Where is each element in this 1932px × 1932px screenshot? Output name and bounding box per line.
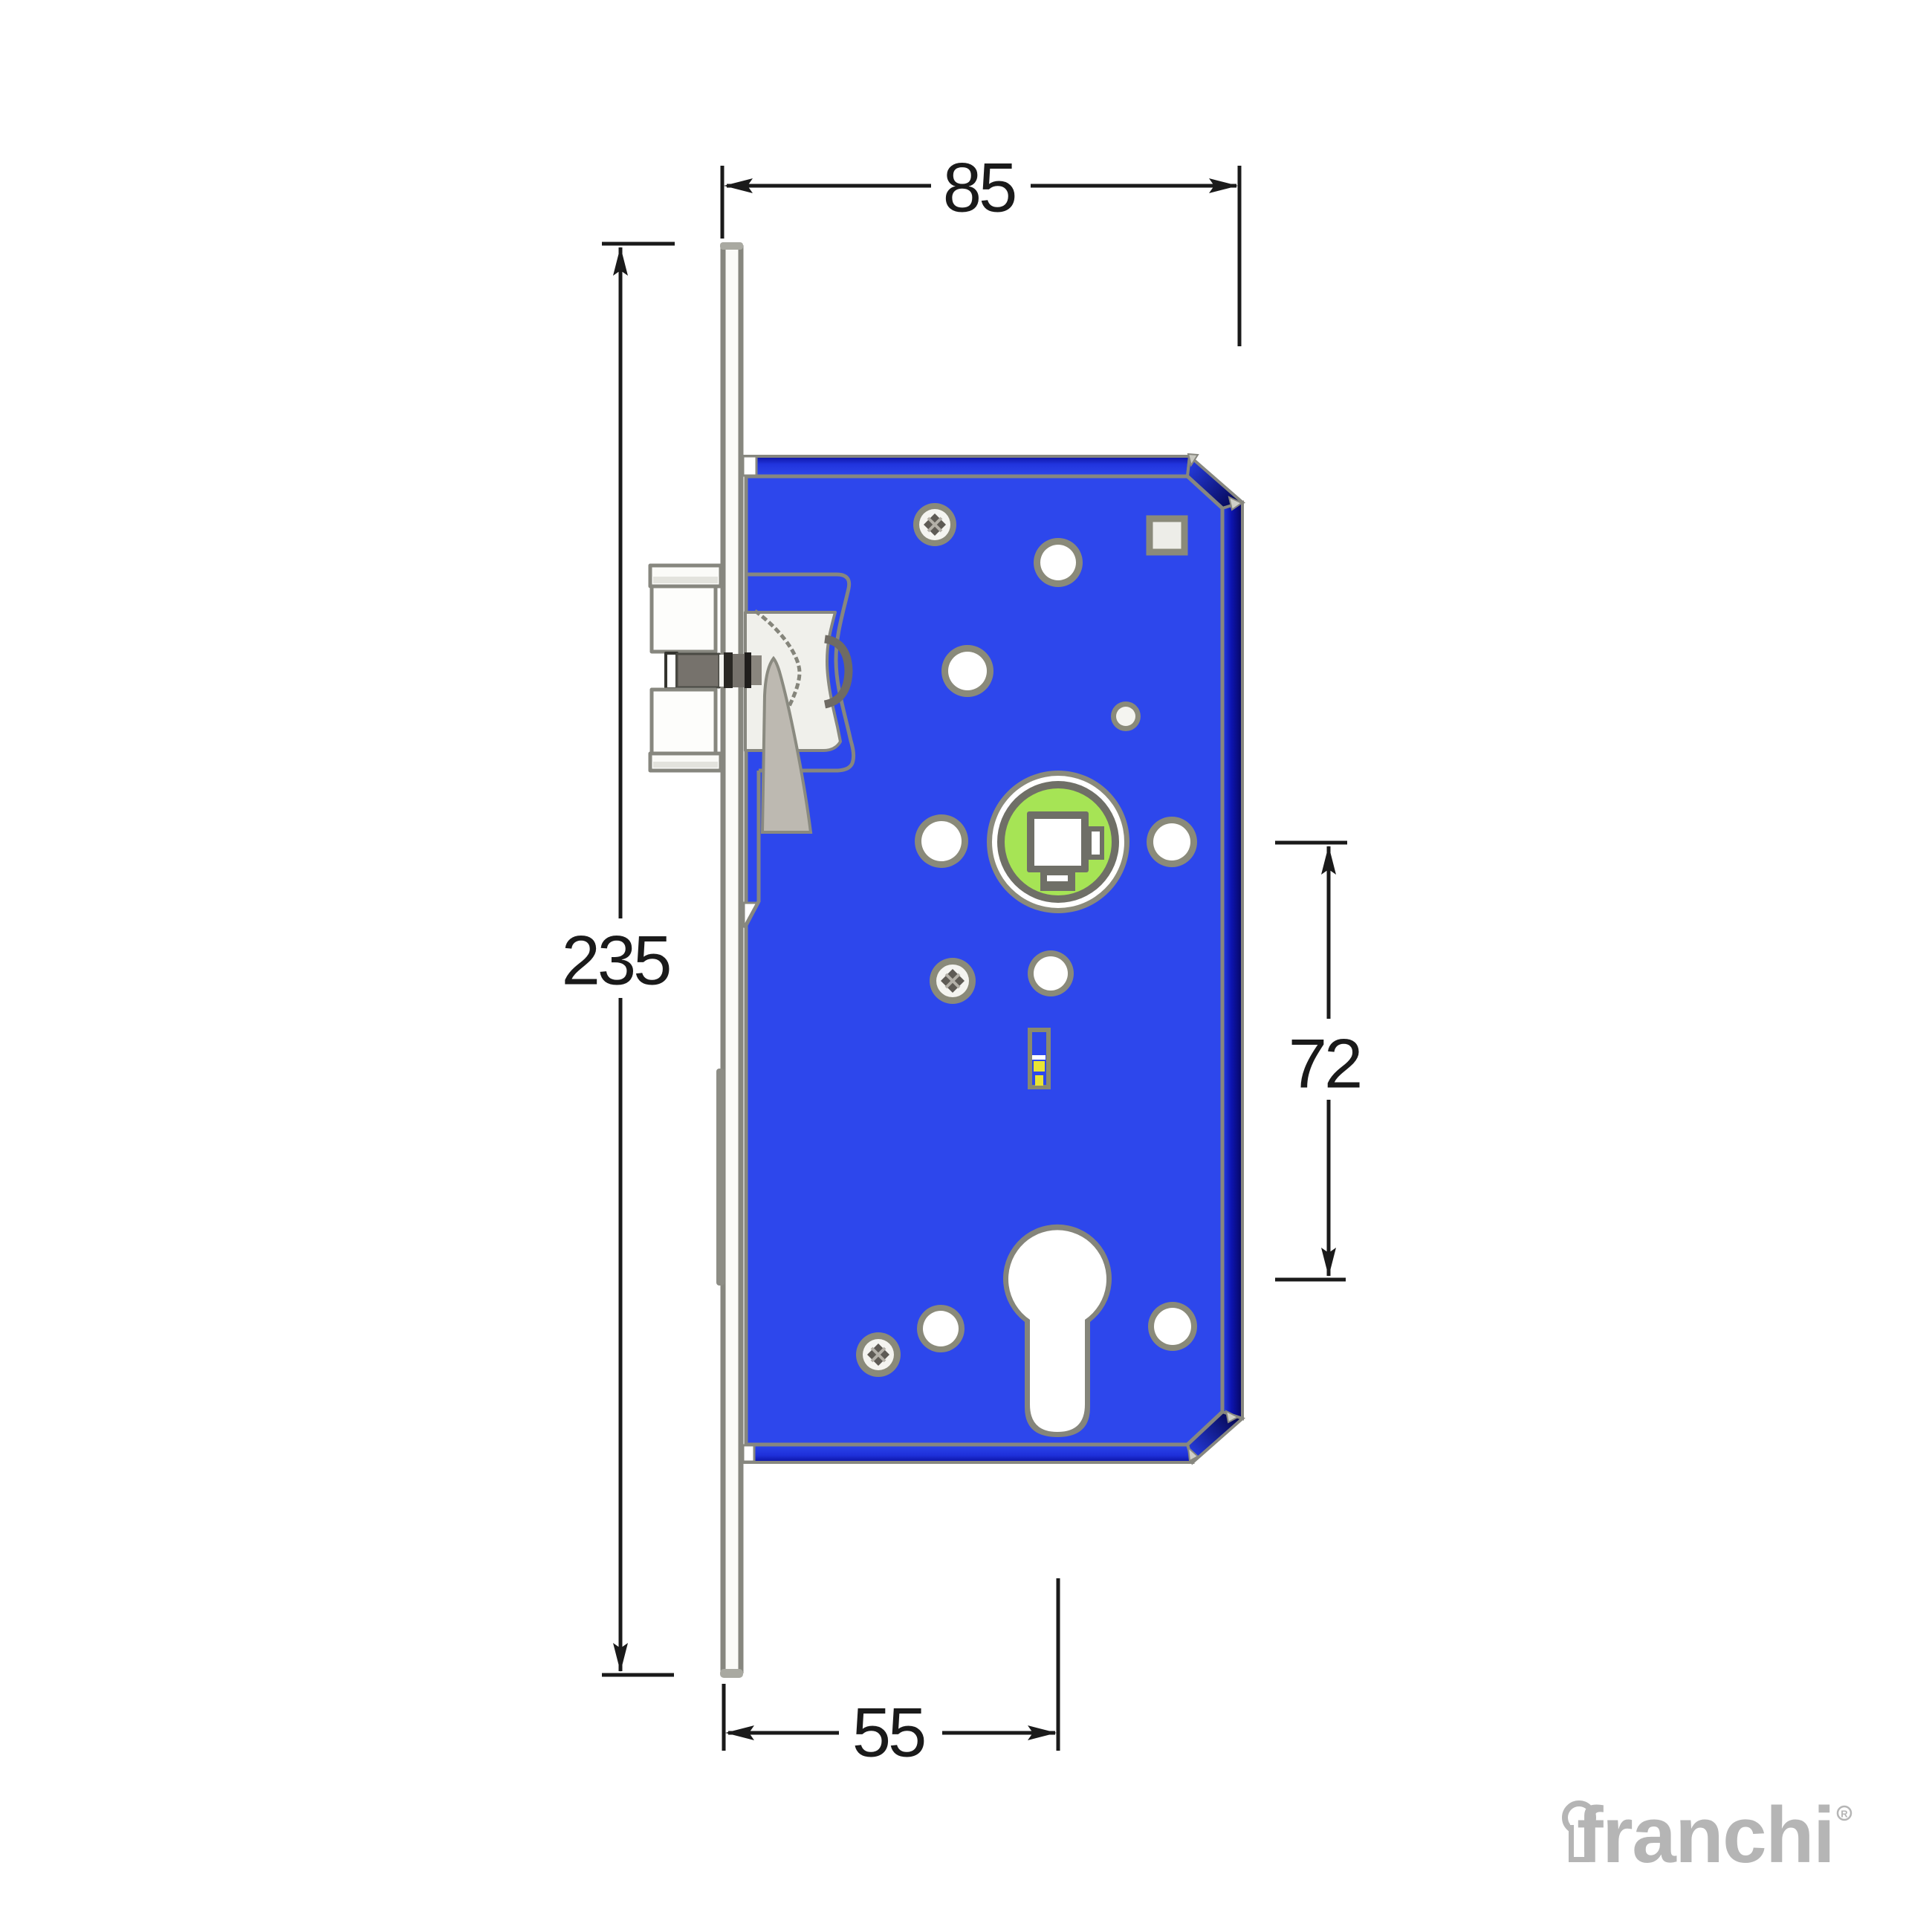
svg-text:235: 235 [562,921,670,999]
svg-text:55: 55 [852,1693,924,1771]
svg-text:R: R [1841,1809,1848,1820]
svg-text:franchi: franchi [1577,1790,1834,1879]
svg-text:85: 85 [943,149,1015,227]
svg-text:72: 72 [1288,1025,1361,1103]
